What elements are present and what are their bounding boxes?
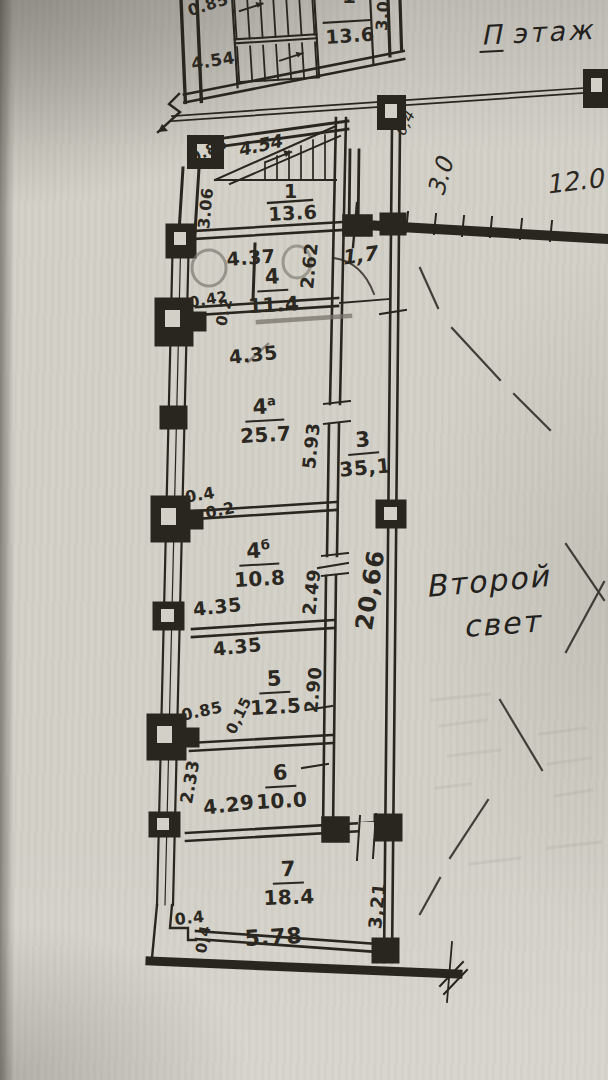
floor-title-word: этаж xyxy=(511,14,596,49)
room7-label: 7 18.4 xyxy=(262,856,315,908)
room6-label: 6 10.0 xyxy=(254,759,308,812)
bleed-through xyxy=(432,694,600,864)
room5-dim-right: 2.90 xyxy=(302,666,325,714)
second-light-note-line2: свет xyxy=(462,607,542,642)
room4-dim-bottom: 4.35 xyxy=(228,343,279,367)
room4a-label: 4а 25.7 xyxy=(238,393,292,446)
room7-area: 18.4 xyxy=(263,883,315,908)
stair-room-area: 13.6 xyxy=(268,202,318,224)
open-space-top-wall xyxy=(348,203,608,247)
room6-area: 10.0 xyxy=(255,786,307,812)
floor-title-roman: П xyxy=(478,19,504,53)
floor-title: П этаж xyxy=(478,16,596,49)
room5-area: 12.5 xyxy=(249,692,301,718)
open-space-dim-length: 12.0 xyxy=(544,165,605,198)
room3-area: 35,1 xyxy=(338,452,391,479)
stair-room-depth-dim: 3.06 xyxy=(196,187,216,230)
room4b-dim-bottom: 4.35 xyxy=(192,595,243,619)
room4a-dim-right: 5.93 xyxy=(300,422,323,470)
floorplan-scan: 0.85 4.54 1 13.6 3.0 П этаж 0,4 3.0 12.0… xyxy=(0,0,608,1080)
wall-break-arrow xyxy=(158,94,180,132)
room7-dim-bottom: 5.78 xyxy=(244,925,303,950)
room4b-label: 4б 10.8 xyxy=(232,537,286,590)
room5-dim-top: 4.35 xyxy=(212,635,263,659)
stair-room-number: 1 xyxy=(284,182,298,201)
upper-stairs-dim-depth: 3.0 xyxy=(374,0,392,31)
room4-dim-right: 2.62 xyxy=(298,242,321,290)
room3-label: 3 35,1 xyxy=(336,426,392,480)
upper-stairs-area: 13.6 xyxy=(325,25,375,47)
room4a-area: 25.7 xyxy=(239,420,291,446)
room4-area: 11.4 xyxy=(247,290,299,316)
room7-dim-right: 3,21 xyxy=(366,882,389,930)
room5-label: 5 12.5 xyxy=(248,665,302,718)
room6-dim-bottom: 4.29 xyxy=(202,792,255,818)
room4-label: 4 11.4 xyxy=(246,263,300,316)
upper-stairs-number: 1 xyxy=(342,0,356,6)
left-window-wall xyxy=(147,224,206,905)
room4b-area: 10.8 xyxy=(233,564,285,590)
floorplan-linework xyxy=(0,0,608,1080)
room4-dim-corridor: 1,7 xyxy=(340,243,378,268)
